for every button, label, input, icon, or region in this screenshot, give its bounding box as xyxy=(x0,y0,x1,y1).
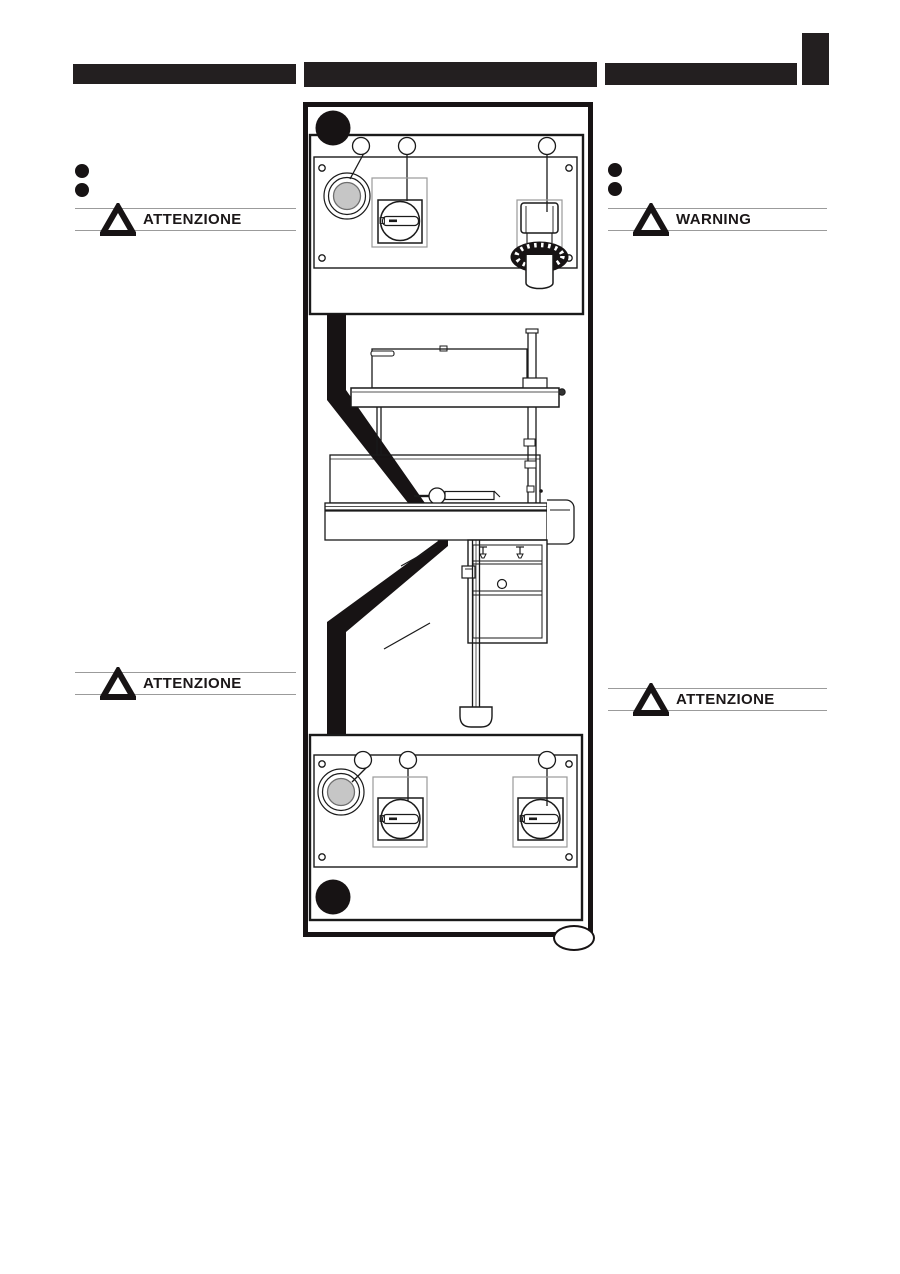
emergency-stop-button xyxy=(324,173,370,219)
callout-circle xyxy=(399,138,416,155)
bullet-icon xyxy=(75,164,89,178)
lower-control-panel xyxy=(310,735,582,920)
figure-frame xyxy=(303,102,593,937)
manual-page: { "page": { "type": "machine-manual-page… xyxy=(0,0,900,1274)
header-bar-center xyxy=(304,62,597,87)
page-number-oval xyxy=(553,925,595,951)
callout-circle xyxy=(353,138,370,155)
warning-strip-right-top: WARNING xyxy=(608,208,827,231)
header-bar-left xyxy=(73,64,296,84)
bullet-icon xyxy=(608,163,622,177)
callout-circle xyxy=(355,752,372,769)
warning-strip-right-bottom: ATTENZIONE xyxy=(608,688,827,711)
warning-strip-left-bottom: ATTENZIONE xyxy=(75,672,296,695)
hook-icon xyxy=(559,389,565,395)
adjustment-knob xyxy=(511,200,569,289)
bullet-icon xyxy=(608,182,622,196)
main-rotary-switch xyxy=(372,178,427,247)
pedal-icon xyxy=(460,707,492,727)
warning-triangle-icon xyxy=(100,667,136,706)
machine-diagram xyxy=(308,107,588,932)
lower-cabinet xyxy=(462,540,547,643)
bolt-icon xyxy=(479,547,487,558)
callout-circle xyxy=(539,138,556,155)
warning-label: WARNING xyxy=(608,209,751,230)
knob-icon xyxy=(498,580,507,589)
machine-side-view xyxy=(325,329,574,727)
callout-circle xyxy=(400,752,417,769)
bolt-icon xyxy=(516,547,524,558)
screw-icon xyxy=(319,255,325,261)
upper-control-panel xyxy=(310,111,583,315)
warning-triangle-icon xyxy=(633,683,669,722)
warning-triangle-icon xyxy=(100,203,136,242)
warning-triangle-icon xyxy=(633,203,669,242)
page-corner-block xyxy=(802,33,829,85)
figure-badge xyxy=(316,880,351,915)
screw-icon xyxy=(566,165,572,171)
figure-badge xyxy=(316,111,351,146)
callout-circle xyxy=(539,752,556,769)
warning-strip-left-top: ATTENZIONE xyxy=(75,208,296,231)
screw-icon xyxy=(319,165,325,171)
bullet-icon xyxy=(75,183,89,197)
header-bar-right xyxy=(605,63,797,85)
